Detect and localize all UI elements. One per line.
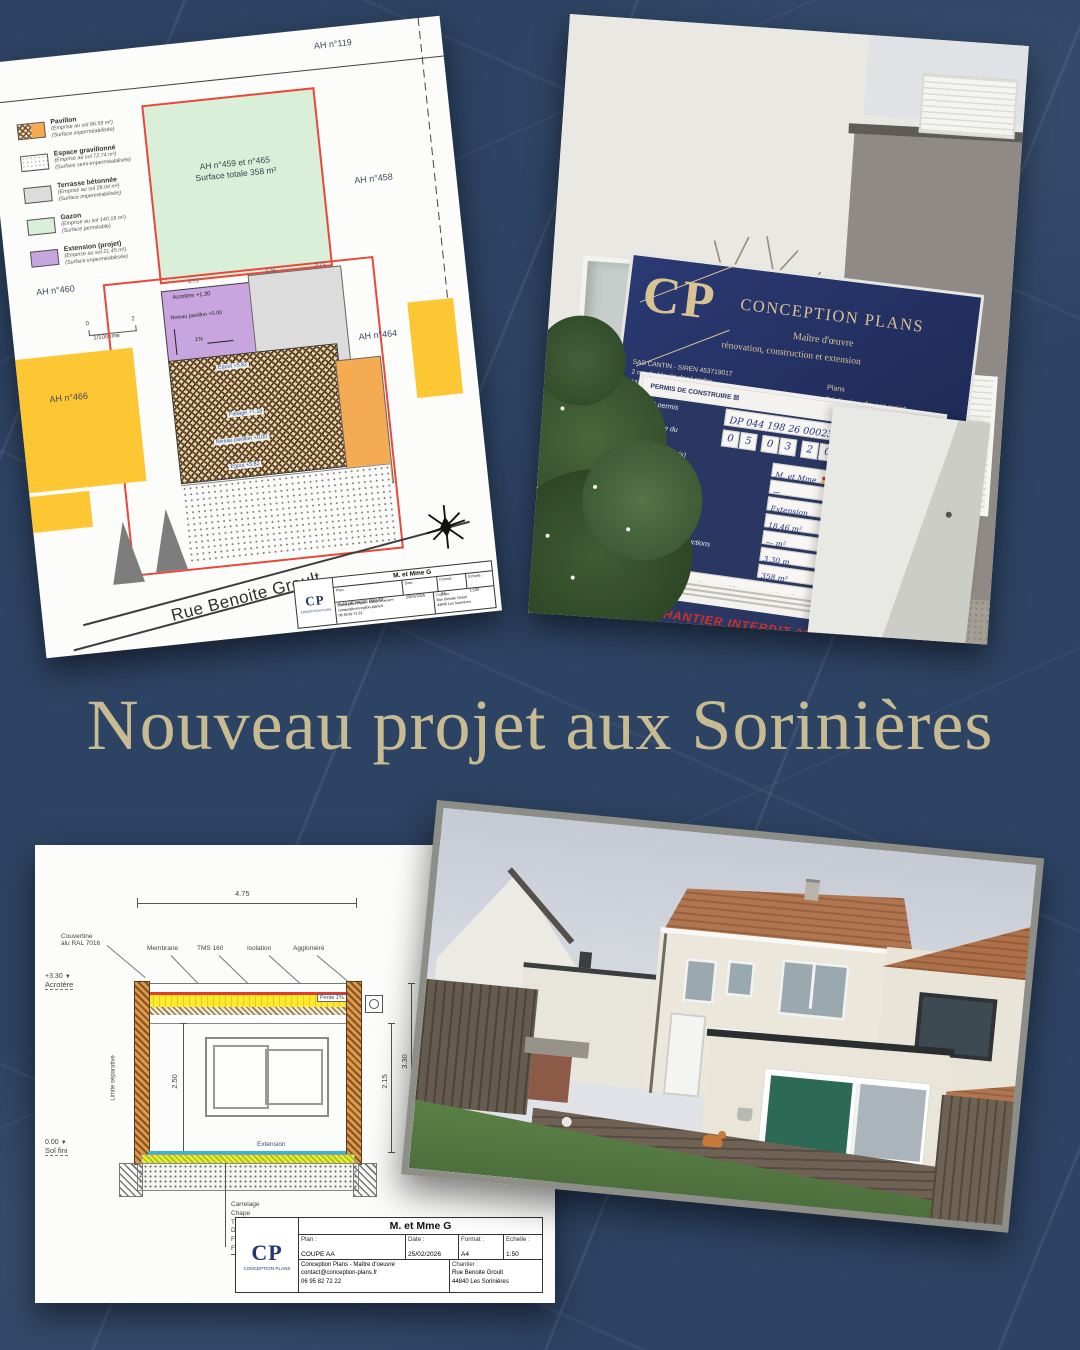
permit-construire: PERMIS DE CONSTRUIRE ☒ xyxy=(650,381,740,401)
coupe-dim-250: 2.50 xyxy=(170,1074,179,1089)
chimney xyxy=(804,879,820,901)
checked-checkbox-icon: ☒ xyxy=(733,394,740,402)
cp-logo: CP xyxy=(251,1240,282,1266)
label-sol-fini: 0.00 ▼ Sol fini xyxy=(45,1137,68,1155)
photo-house-back xyxy=(401,800,1044,1233)
legend-item-terrasse: Terrasse bétonnée (Emprise au sol 28.04 … xyxy=(23,176,122,207)
date-digit: 0 xyxy=(721,429,740,448)
parcel-green-459-465: AH n°459 et n°465 Surface totale 358 m² xyxy=(141,87,333,284)
echelle-value: 1:50 xyxy=(506,1251,519,1258)
legend-swatch-gazon xyxy=(27,217,57,236)
cp-logo: CP xyxy=(305,592,326,610)
legend-swatch-gravillon xyxy=(20,153,50,172)
floor-layer: Carrelage xyxy=(231,1201,311,1210)
label-pente: Pente 1% xyxy=(317,994,347,1002)
dim-line-250 xyxy=(183,1023,184,1153)
extension-area: Acrotère +1.30 Niveau pavillon +0.00 1% xyxy=(161,282,258,363)
parcel-ah466-area: AH n°466 xyxy=(15,348,146,494)
pente-arrow xyxy=(207,340,233,344)
siteplan-titleblock-logo: CP CONCEPTION PLANS xyxy=(294,578,338,628)
parcel-ah464-area xyxy=(407,298,463,398)
pillar-keyhole xyxy=(945,511,952,518)
parcel-label-ah458: AH n°458 xyxy=(354,172,393,186)
format-label: Format : xyxy=(461,1236,501,1243)
plan-value: COUPE AA xyxy=(301,1251,335,1258)
label-limite-separative: Limite séparative xyxy=(111,1055,117,1100)
date-digit: 0 xyxy=(760,435,779,454)
date-label: Date : xyxy=(404,578,434,585)
chantier-line2: 44840 Les Sorinières xyxy=(452,1278,540,1286)
label-isolation: Isolation xyxy=(247,945,271,952)
date-digit: 2 xyxy=(800,440,819,459)
leader-line xyxy=(107,945,146,978)
coupe-dim-top: 4.75 xyxy=(235,889,250,898)
window-mullion xyxy=(809,965,816,1009)
label-membrane: Membrane xyxy=(147,945,178,952)
siteplan-titleblock: CP CONCEPTION PLANS M. et Mme G Plan : P… xyxy=(293,560,497,629)
window-pane xyxy=(265,1049,323,1105)
left-fence xyxy=(415,979,539,1115)
yellow-strip xyxy=(30,491,93,533)
site-plan-document: AH n°119 AH n°458 Pavillon (Emprise au s… xyxy=(0,16,502,659)
acrotere-label: Acrotère xyxy=(45,980,73,990)
legend-item-gazon: Gazon (Emprise au sol 140.18 m²) (Surfac… xyxy=(26,208,127,239)
parcel-label-ah466: AH n°466 xyxy=(49,391,88,405)
titleblock-company-cell: Conception Plans - Maître d'oeuvre conta… xyxy=(299,1260,450,1292)
brick-barbecue xyxy=(528,1053,572,1103)
company: Conception Plans - Maître d'oeuvre xyxy=(301,1261,447,1269)
permit-construire-label: PERMIS DE CONSTRUIRE xyxy=(650,382,732,400)
dim-tick xyxy=(356,898,357,908)
acrotere-value: +3.30 xyxy=(45,973,63,980)
scale-zero: 0 xyxy=(86,321,90,327)
tree-icon xyxy=(150,507,188,572)
boundary-line-dashed xyxy=(418,18,453,346)
legend-item-pavillon: Pavillon (Emprise au sol 86.59 m²) (Surf… xyxy=(16,112,115,143)
chantier-line1: Rue Benoite Groult xyxy=(452,1269,540,1277)
footing-right xyxy=(353,1163,377,1197)
format-value: A4 xyxy=(461,1251,469,1258)
planter-pot xyxy=(737,1107,753,1121)
post-canvas: AH n°119 AH n°458 Pavillon (Emprise au s… xyxy=(0,0,1080,1350)
format-label: Format : xyxy=(439,575,463,581)
solfini-value: 0.00 xyxy=(45,1139,59,1146)
dog xyxy=(702,1134,723,1148)
chantier-label: Chantier : xyxy=(452,1261,540,1269)
footing-left xyxy=(119,1163,143,1197)
ann-pente-1: 1% xyxy=(195,336,204,343)
tree-icon xyxy=(107,520,145,585)
photo-house-front: CP CONCEPTION PLANS Maître d'œuvre rénov… xyxy=(528,14,1029,645)
email: contact@conception-plans.fr xyxy=(301,1269,447,1277)
ann-faitage: Faîtage +7.18 xyxy=(227,408,265,418)
titleblock-chantier-cell: Chantier : Rue Benoite Groult 44840 Les … xyxy=(450,1260,542,1292)
leader-line xyxy=(171,955,201,986)
phone: 06 95 82 72 22 xyxy=(301,1278,447,1286)
ann-egout-bottom: Egout +5.82 xyxy=(228,461,262,470)
ann-niveau-pavillon-2: Niveau pavillon +0.00 xyxy=(214,434,270,446)
label-agglomere: Aggloméré xyxy=(293,945,324,952)
foundation-stipple xyxy=(137,1163,359,1191)
coupe-dim-330: 3.30 xyxy=(400,1054,409,1069)
legend-item-extension: Extension (projet) (Emprise au sol 21.45… xyxy=(30,240,129,271)
dim-tick xyxy=(137,898,138,908)
left-wall xyxy=(134,981,150,1165)
post-headline: Nouveau projet aux Sorinières xyxy=(0,684,1080,767)
parcel-label-ah119: AH n°119 xyxy=(313,37,352,51)
coupe-titleblock-logo: CP CONCEPTION PLANS xyxy=(236,1218,299,1292)
legend-swatch-terrasse xyxy=(23,185,53,204)
compass-rose-icon xyxy=(421,502,472,553)
roof-ceiling-layer xyxy=(135,1015,360,1024)
section-window xyxy=(205,1037,329,1117)
right-fence xyxy=(930,1095,1018,1226)
parcel-green-label: AH n°459 et n°465 Surface totale 358 m² xyxy=(150,149,321,190)
label-couvertine-2: alu RAL 7016 xyxy=(61,940,100,947)
level-arrow xyxy=(174,329,178,355)
ann-niveau-pavillon: Niveau pavillon +0.00 xyxy=(170,310,222,321)
callout-leader xyxy=(225,1163,226,1247)
date-digit: 3 xyxy=(778,437,797,456)
titleblock-echelle-cell: Echelle : 1:100 xyxy=(466,571,493,588)
upper-window xyxy=(682,958,718,1005)
solfini-label: Sol fini xyxy=(45,1146,68,1156)
window-pane xyxy=(213,1045,269,1109)
plan-label: Plan : xyxy=(301,1236,403,1243)
sign-brand: CONCEPTION PLANS xyxy=(739,294,925,336)
echelle-label: Echelle : xyxy=(506,1236,540,1243)
panne-circle xyxy=(369,999,379,1009)
date-digit: 5 xyxy=(739,432,758,451)
right-wall xyxy=(346,981,362,1165)
echelle-label: Echelle : xyxy=(468,572,490,578)
label-couvertine: Couvertine alu RAL 7016 xyxy=(61,933,100,947)
dim-475: 4.75 xyxy=(188,278,199,285)
titleblock-date-cell: Date : 25/02/2026 xyxy=(406,1235,459,1259)
ann-egout-top: Egout +5.82 xyxy=(216,362,250,371)
ann-acrotere-130: Acrotère +1.30 xyxy=(172,291,211,301)
dim-line-top xyxy=(137,903,357,904)
panne-detail xyxy=(365,995,383,1013)
titleblock-client: M. et Mme G xyxy=(299,1218,542,1235)
date-value: 25/02/2026 xyxy=(408,1251,441,1258)
white-pillar xyxy=(808,406,991,645)
titleblock-format-cell: Format : A4 xyxy=(459,1235,504,1259)
cp-logo-caption: CONCEPTION PLANS xyxy=(244,1266,291,1271)
row-value: — xyxy=(769,487,781,497)
titleblock-plan-cell: Plan : COUPE AA xyxy=(299,1235,406,1259)
sign-tagline1: Maître d'œuvre xyxy=(792,331,854,349)
pavilion-roof-area: Egout +5.82 Faîtage +7.18 Niveau pavillo… xyxy=(168,343,350,484)
titleblock-echelle-cell: Echelle : 1:50 xyxy=(504,1235,542,1259)
upper-window-large xyxy=(777,959,850,1021)
dim-line-215 xyxy=(391,1023,392,1153)
glass-pane xyxy=(850,1084,927,1162)
upper-shutter-window xyxy=(919,73,1019,140)
coupe-dim-215: 2.15 xyxy=(380,1074,389,1089)
label-acrotere: +3.30 ▼ Acrotère xyxy=(45,971,73,989)
date-label: Date : xyxy=(408,1236,456,1243)
label-couvertine-1: Couvertine xyxy=(61,933,100,940)
upper-window-small xyxy=(725,960,756,999)
leader-line xyxy=(317,955,351,984)
green-covered-pane xyxy=(764,1075,853,1155)
label-tms160: TMS 160 xyxy=(197,945,223,952)
label-extension: Extension xyxy=(257,1141,286,1148)
coupe-titleblock: CP CONCEPTION PLANS M. et Mme G Plan : C… xyxy=(235,1217,543,1293)
legend-item-gravillon: Espace gravillonné (Emprise au sol 72.74… xyxy=(20,143,132,175)
legend-swatch-pavillon xyxy=(17,122,47,141)
legend-swatch-extension xyxy=(30,249,60,268)
parcel-label-ah460: AH n°460 xyxy=(36,283,75,297)
